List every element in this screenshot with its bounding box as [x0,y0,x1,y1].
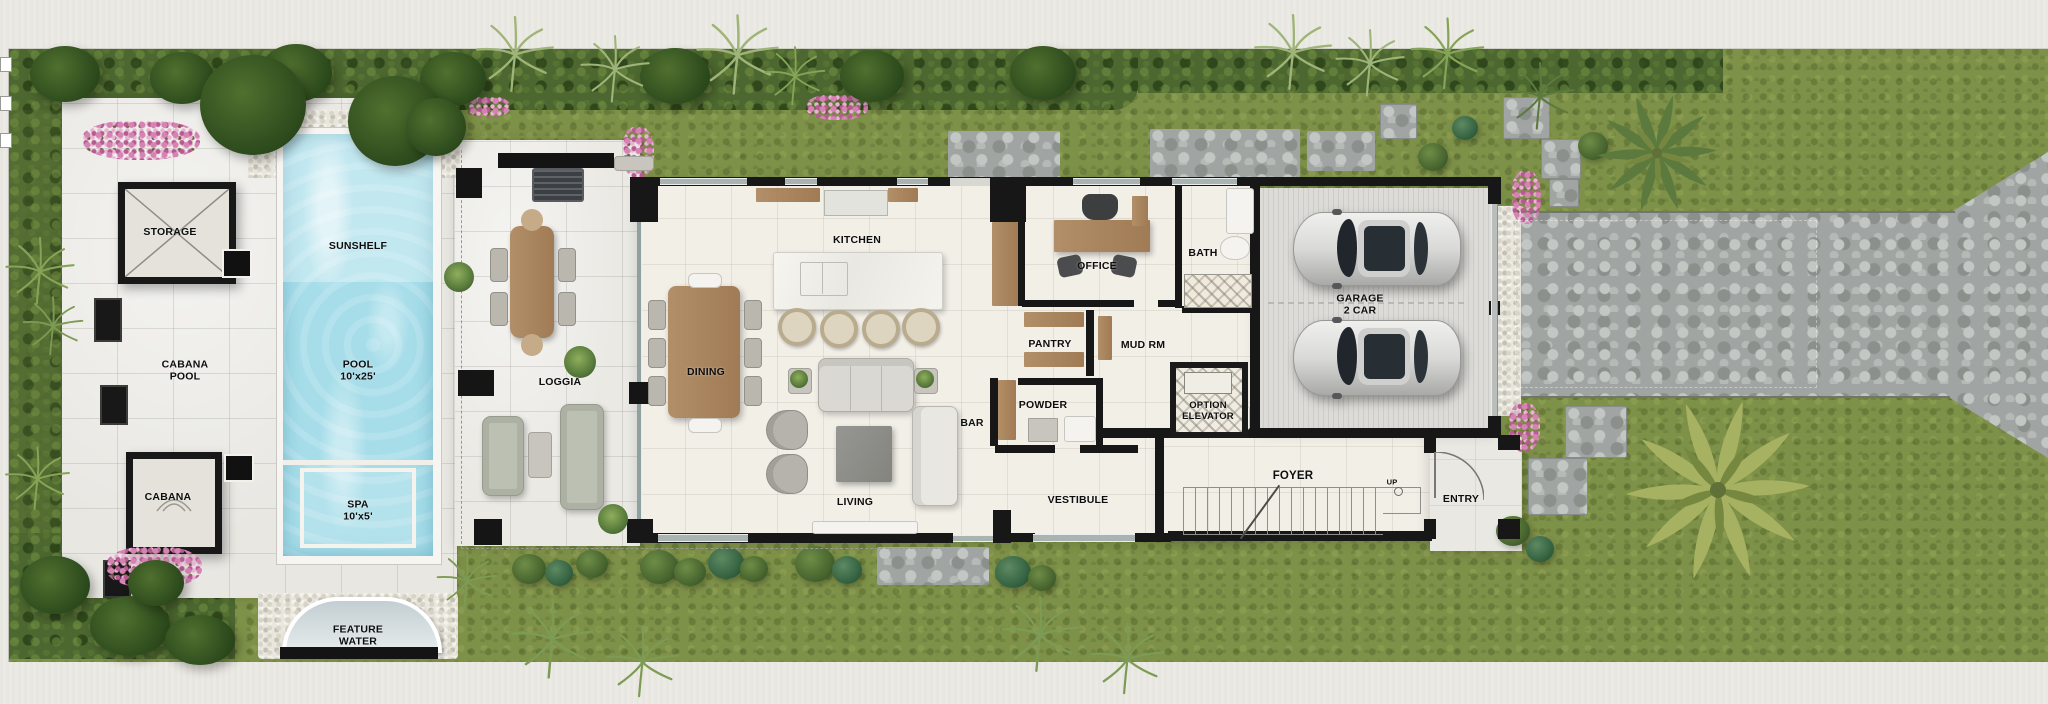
car-windshield [1337,219,1357,277]
fern-plant [1405,10,1490,95]
hedge-bush [840,50,904,102]
bed-bush [20,556,90,614]
room-label-bath: BATH [1188,247,1217,259]
loggia-post [474,519,502,545]
dining-head-chair [688,273,722,288]
armchair [766,410,808,450]
car [1293,212,1461,286]
kitchen-island [773,252,943,310]
pantry-shelf [1024,312,1084,327]
room-label-cabana: CABANA [145,491,192,503]
stepping-stone [1541,139,1581,179]
survey-marker [0,96,12,111]
loggia-post [456,168,482,198]
floor-plan-canvas: STORAGE CABANA POOL SUNSHELF POOL 10'x25… [0,0,2048,704]
room-label-sunshelf: SUNSHELF [329,240,387,252]
garage-door [1491,204,1498,416]
wall [1011,533,1035,542]
bar-stool [778,308,816,346]
wall-corner [630,177,658,222]
wall [1086,310,1094,376]
glass-wall [637,404,641,519]
tree-canopy [200,55,306,155]
shrub [995,556,1031,588]
wall [1018,186,1025,306]
wall [1095,428,1500,438]
palm-tree [1618,390,1818,590]
outdoor-chair [490,248,508,282]
window [1073,178,1140,185]
room-label-mud-rm: MUD RM [1121,339,1165,351]
dining-head-chair [688,418,722,433]
wall [630,177,1501,186]
outdoor-dining-seat [521,334,543,356]
wall [1080,445,1138,453]
fern-plant [505,590,600,685]
stairs [1183,487,1421,533]
car-mirror [1332,317,1342,323]
entry-post [1498,435,1520,450]
stone-patch [877,547,989,585]
door-opening [950,178,990,186]
shrub [795,546,835,582]
armchair [766,454,808,494]
dining-chair [744,300,762,330]
kitchen-counter [756,188,820,202]
kitchen-counter [888,188,918,202]
sofa [912,406,958,506]
stepping-stone [1528,458,1588,515]
shrub [708,547,744,579]
car-mirror [1332,209,1342,215]
water-feature-base [280,647,438,659]
fern-plant [432,545,502,615]
fern-plant [600,618,685,703]
car [1293,320,1461,396]
fern-plant [575,28,655,108]
car-windshield [1337,327,1357,385]
fern-plant [760,40,830,110]
room-label-dining: DINING [687,366,725,378]
room-label-loggia: LOGGIA [539,376,582,388]
sofa [818,358,914,412]
flower-bed [1511,170,1541,224]
planter-plant [790,370,808,388]
dining-chair [744,376,762,406]
room-label-powder: POWDER [1019,399,1067,411]
stair-start-dot [1394,487,1403,496]
wall [995,445,1055,453]
hedge-bush [30,46,100,102]
shower [1184,274,1252,308]
entry-post [1424,437,1436,453]
dining-chair [648,300,666,330]
room-label-entry: ENTRY [1443,493,1479,505]
sliding-door [658,534,748,542]
fern-plant [470,8,560,98]
stepping-stone [1380,104,1417,139]
fern-plant [995,588,1085,678]
window [660,178,747,185]
bar-stool [820,310,858,348]
car-mirror [1332,283,1342,289]
pantry-shelf [1024,352,1084,367]
potted-plant [598,504,628,534]
dining-table [668,286,740,418]
bed-bush [128,560,184,606]
room-label-living: LIVING [837,496,873,508]
room-label-storage: STORAGE [143,226,196,238]
survey-marker [0,133,12,148]
entry-post [1424,519,1436,539]
room-label-office: OFFICE [1077,260,1117,272]
hedge-bush [1010,46,1076,100]
room-label-garage: GARAGE 2 CAR [1336,293,1383,318]
stone-path [1150,129,1300,179]
paneled-wall [992,222,1018,306]
outdoor-chair [558,248,576,282]
bar-cabinet [998,380,1016,440]
bed-bush [165,615,235,665]
outdoor-sofa [560,404,604,510]
island-sink [800,262,848,296]
room-label-bar: BAR [960,417,983,429]
range [824,190,888,216]
wall [1022,300,1134,307]
room-label-vestibule: VESTIBULE [1048,494,1109,506]
room-label-cabana-pool: CABANA POOL [162,359,209,384]
outdoor-chair [490,292,508,326]
wall-stub [993,510,1011,543]
dining-chair [744,338,762,368]
powder-mat [1028,418,1058,442]
outdoor-sofa [482,416,524,496]
tree-canopy [406,98,466,156]
wall [1018,378,1096,385]
shrub [576,550,608,578]
room-label-option-elevator: OPTION ELEVATOR [1182,400,1234,422]
flower-bed [82,120,200,160]
potted-plant [444,262,474,292]
room-label-kitchen: KITCHEN [833,234,881,246]
wall [1155,438,1164,533]
wall-corner [1488,180,1501,204]
bar-stool [902,308,940,346]
room-label-pantry: PANTRY [1028,338,1071,350]
stair-treads [1183,487,1383,535]
stone-path [1307,131,1375,171]
entry-post [1498,519,1520,539]
outdoor-chair [558,292,576,326]
wall [1135,533,1171,542]
car-mirror [1332,393,1342,399]
room-label-feature-water: FEATURE WATER [333,624,383,649]
stone-path [948,131,1060,179]
survey-marker [0,57,12,72]
wall-corner [627,519,653,543]
window [953,535,993,542]
car-sunroof [1364,226,1405,271]
glass-wall [637,222,641,382]
toilet [1220,236,1250,260]
bar-stool [862,310,900,348]
wall [990,378,998,446]
shrub [640,550,678,584]
outdoor-dining-table [510,226,554,338]
outdoor-sink-counter [614,156,654,171]
shrub [512,554,546,584]
room-label-foyer: FOYER [1273,470,1314,484]
window [1172,178,1237,185]
pool [283,134,433,556]
shrub [1452,116,1478,140]
dining-chair [648,376,666,406]
bath-sink [1226,188,1254,234]
fire-feature [222,249,252,278]
mudroom-bench [1098,316,1112,360]
car-sunroof [1364,334,1405,379]
coffee-table [836,426,892,482]
driveway-apron [1515,220,1817,388]
grill [532,168,584,202]
wall-stub [629,382,650,404]
potted-plant [564,346,596,378]
fern-plant [1330,22,1410,102]
driveway-curb [1495,211,1955,213]
deck-bench [100,385,128,425]
outdoor-dining-seat [521,209,543,231]
fire-feature [224,454,254,482]
island-sink-divider [822,262,823,294]
office-chair [1082,194,1118,220]
wall [1175,186,1182,308]
spa-coping [283,460,433,465]
outdoor-kitchen-counter [498,153,614,168]
outdoor-side-table [528,432,552,478]
planter-plant [916,370,934,388]
palm-plant [1592,88,1722,218]
powder-sink [1064,416,1096,442]
shrub [545,560,573,586]
stepping-stone [1549,179,1579,207]
fern-plant [1085,615,1170,700]
room-label-pool: POOL 10'x25' [340,359,376,384]
fern-plant [0,440,75,515]
window-seat [812,521,918,534]
fern-plant [18,290,88,360]
elevator-car [1184,372,1232,394]
stair-up-label: UP [1387,479,1398,488]
french-door [1033,534,1135,542]
shrub [1526,536,1554,562]
dining-chair [648,338,666,368]
deck-bench [94,298,122,342]
wall [1096,378,1103,448]
window [785,178,817,185]
shrub [832,556,862,584]
office-cabinet [1132,196,1148,226]
shrub [1418,143,1448,171]
fern-plant [1500,55,1580,135]
shrub [674,558,706,586]
room-label-spa: SPA 10'x5' [343,499,373,524]
fern-plant [1248,6,1338,96]
window [897,178,928,185]
shrub [740,556,768,582]
loggia-post [458,370,494,396]
